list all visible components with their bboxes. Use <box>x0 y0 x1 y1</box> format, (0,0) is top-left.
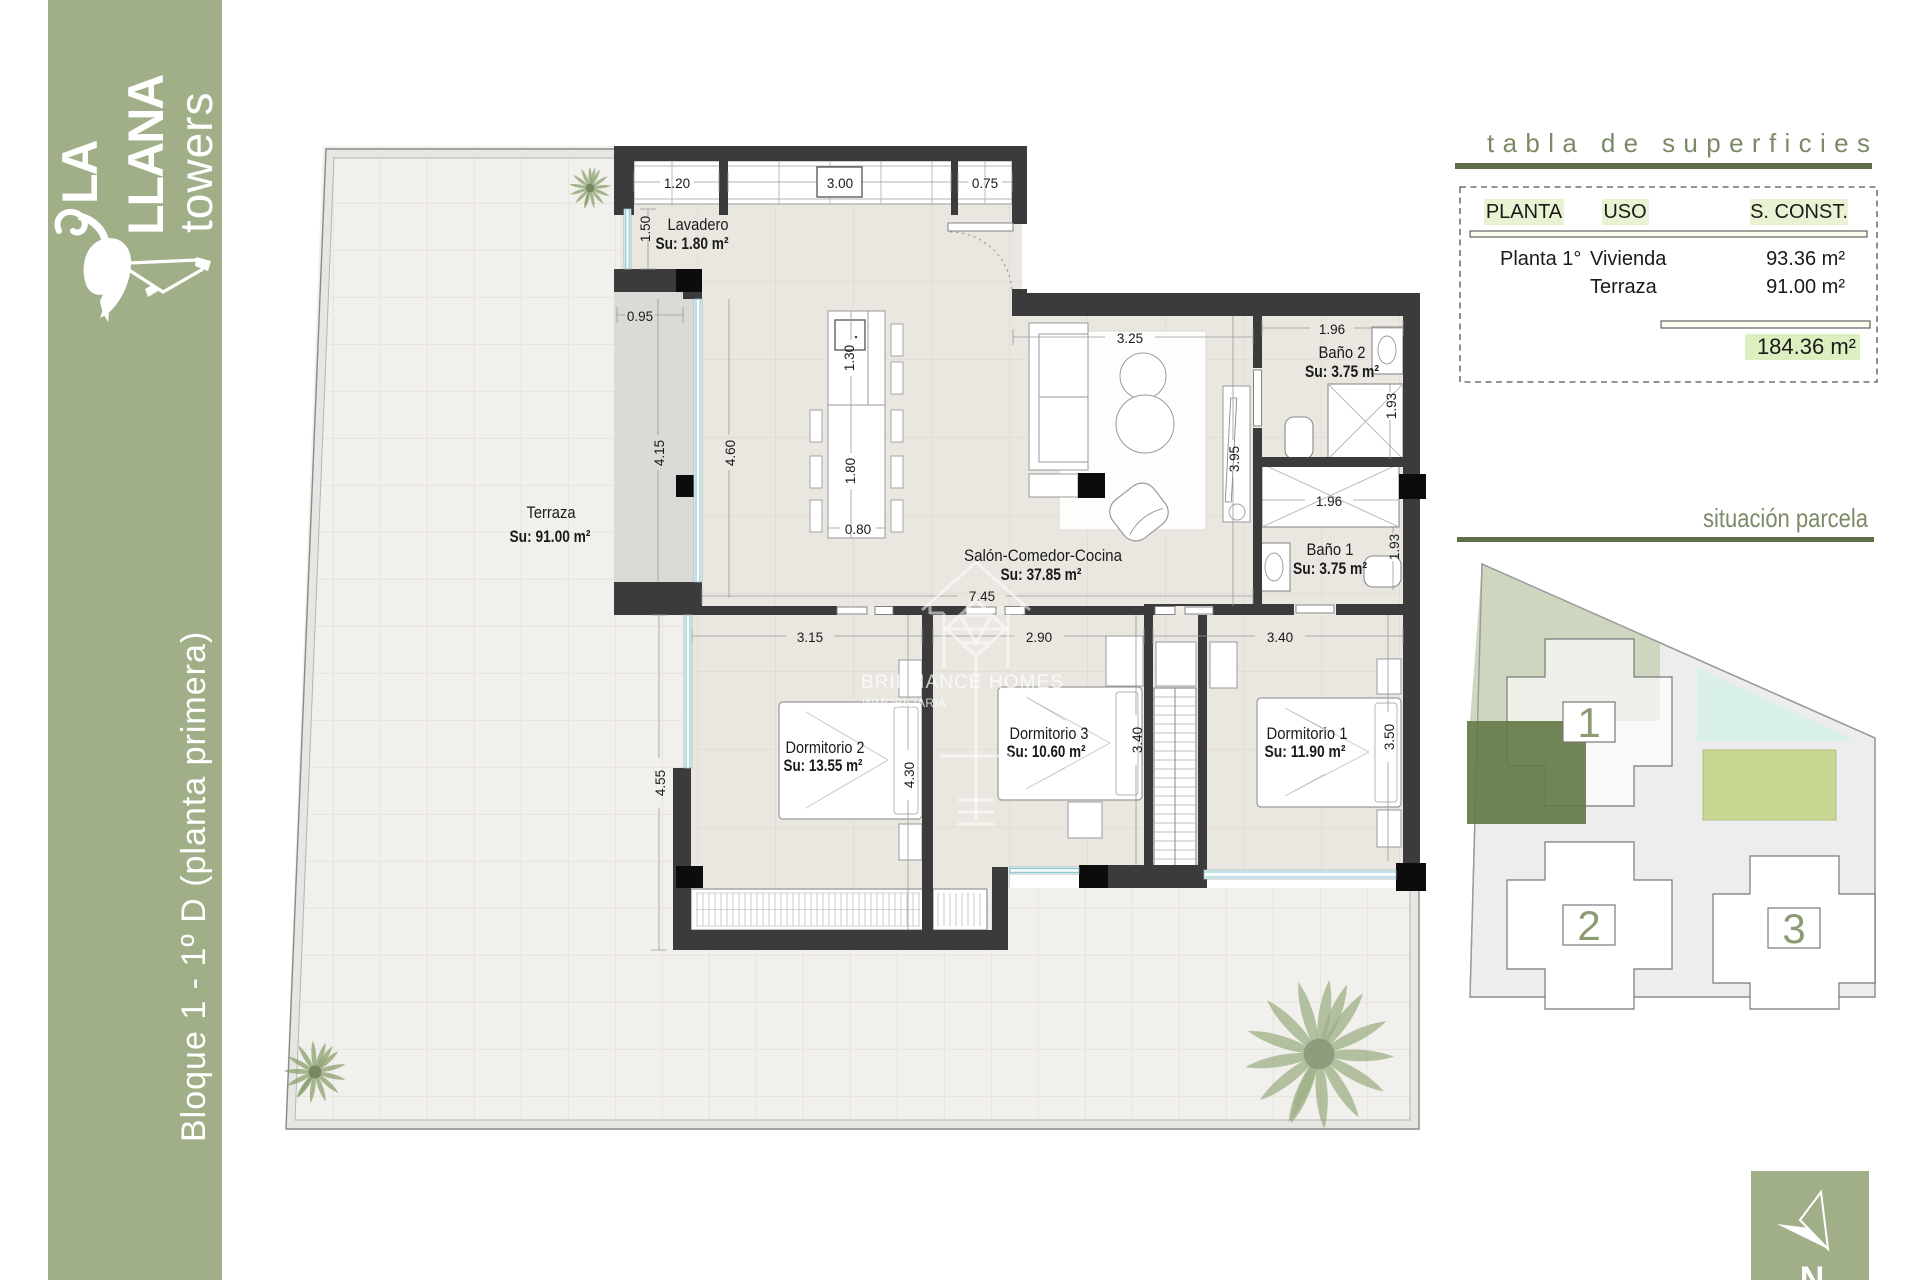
svg-text:INMOBILIARIA: INMOBILIARIA <box>862 696 946 710</box>
svg-text:1.20: 1.20 <box>664 176 690 191</box>
svg-text:LLANA: LLANA <box>118 75 174 235</box>
svg-text:Baño 2: Baño 2 <box>1319 343 1366 362</box>
svg-text:3.40: 3.40 <box>1267 630 1293 645</box>
svg-text:Bloque 1 - 1º D (planta primer: Bloque 1 - 1º D (planta primera) <box>175 631 213 1142</box>
svg-text:PLANTA: PLANTA <box>1486 201 1563 223</box>
svg-text:Salón-Comedor-Cocina: Salón-Comedor-Cocina <box>964 546 1122 565</box>
svg-text:0.75: 0.75 <box>972 176 998 191</box>
svg-text:4.55: 4.55 <box>653 770 668 796</box>
svg-text:Su: 37.85 m²: Su: 37.85 m² <box>1001 566 1082 584</box>
svg-text:Lavadero: Lavadero <box>668 215 729 234</box>
svg-text:Terraza: Terraza <box>1590 276 1658 298</box>
svg-text:Su: 13.55 m²: Su: 13.55 m² <box>784 757 863 775</box>
svg-text:tabla de superficies: tabla de superficies <box>1487 128 1870 158</box>
svg-text:N: N <box>1800 1260 1825 1280</box>
svg-text:Su: 3.75 m²: Su: 3.75 m² <box>1293 560 1367 578</box>
svg-text:4.30: 4.30 <box>902 762 917 788</box>
svg-text:1.50: 1.50 <box>638 216 653 242</box>
svg-text:3.25: 3.25 <box>1117 331 1143 346</box>
svg-text:3: 3 <box>1782 905 1805 952</box>
svg-text:2: 2 <box>1577 902 1600 949</box>
svg-text:Su: 91.00 m²: Su: 91.00 m² <box>510 528 591 546</box>
svg-text:4.15: 4.15 <box>652 440 667 466</box>
svg-text:91.00 m²: 91.00 m² <box>1766 276 1845 298</box>
svg-text:1.96: 1.96 <box>1319 322 1345 337</box>
svg-text:1.96: 1.96 <box>1316 494 1342 509</box>
svg-text:Vivienda: Vivienda <box>1590 248 1667 270</box>
svg-text:S. CONST.: S. CONST. <box>1750 201 1848 223</box>
svg-text:Su: 3.75 m²: Su: 3.75 m² <box>1305 363 1379 381</box>
svg-text:2.90: 2.90 <box>1026 630 1052 645</box>
svg-text:Terraza: Terraza <box>527 503 576 522</box>
svg-text:184.36 m²: 184.36 m² <box>1757 334 1856 359</box>
svg-text:Baño 1: Baño 1 <box>1307 540 1354 559</box>
svg-text:3.50: 3.50 <box>1382 724 1397 750</box>
svg-text:Dormitorio 3: Dormitorio 3 <box>1010 724 1089 743</box>
svg-text:93.36 m²: 93.36 m² <box>1766 248 1845 270</box>
svg-text:3.40: 3.40 <box>1130 727 1145 753</box>
svg-text:BRILLIANCE HOMES: BRILLIANCE HOMES <box>861 672 1063 693</box>
svg-text:1: 1 <box>1577 699 1600 746</box>
svg-text:situación parcela: situación parcela <box>1703 503 1868 533</box>
svg-text:LA: LA <box>52 140 108 204</box>
svg-text:1.93: 1.93 <box>1387 534 1402 560</box>
svg-text:3.95: 3.95 <box>1227 446 1242 472</box>
svg-text:towers: towers <box>170 92 222 233</box>
svg-text:0.95: 0.95 <box>627 309 653 324</box>
svg-text:1.93: 1.93 <box>1384 393 1399 419</box>
svg-text:1.80: 1.80 <box>843 458 858 484</box>
svg-text:0.80: 0.80 <box>845 522 871 537</box>
svg-text:3.00: 3.00 <box>827 176 853 191</box>
svg-text:Dormitorio 2: Dormitorio 2 <box>786 738 865 757</box>
svg-text:4.60: 4.60 <box>723 440 738 466</box>
svg-text:3.15: 3.15 <box>797 630 823 645</box>
svg-text:Su: 11.90 m²: Su: 11.90 m² <box>1265 743 1346 761</box>
svg-text:Planta 1°: Planta 1° <box>1500 248 1581 270</box>
svg-text:Su: 10.60 m²: Su: 10.60 m² <box>1007 743 1086 761</box>
svg-text:USO: USO <box>1603 201 1646 223</box>
svg-text:Su: 1.80 m²: Su: 1.80 m² <box>656 235 729 253</box>
svg-text:1.30: 1.30 <box>842 345 857 371</box>
svg-text:Dormitorio 1: Dormitorio 1 <box>1267 724 1348 743</box>
